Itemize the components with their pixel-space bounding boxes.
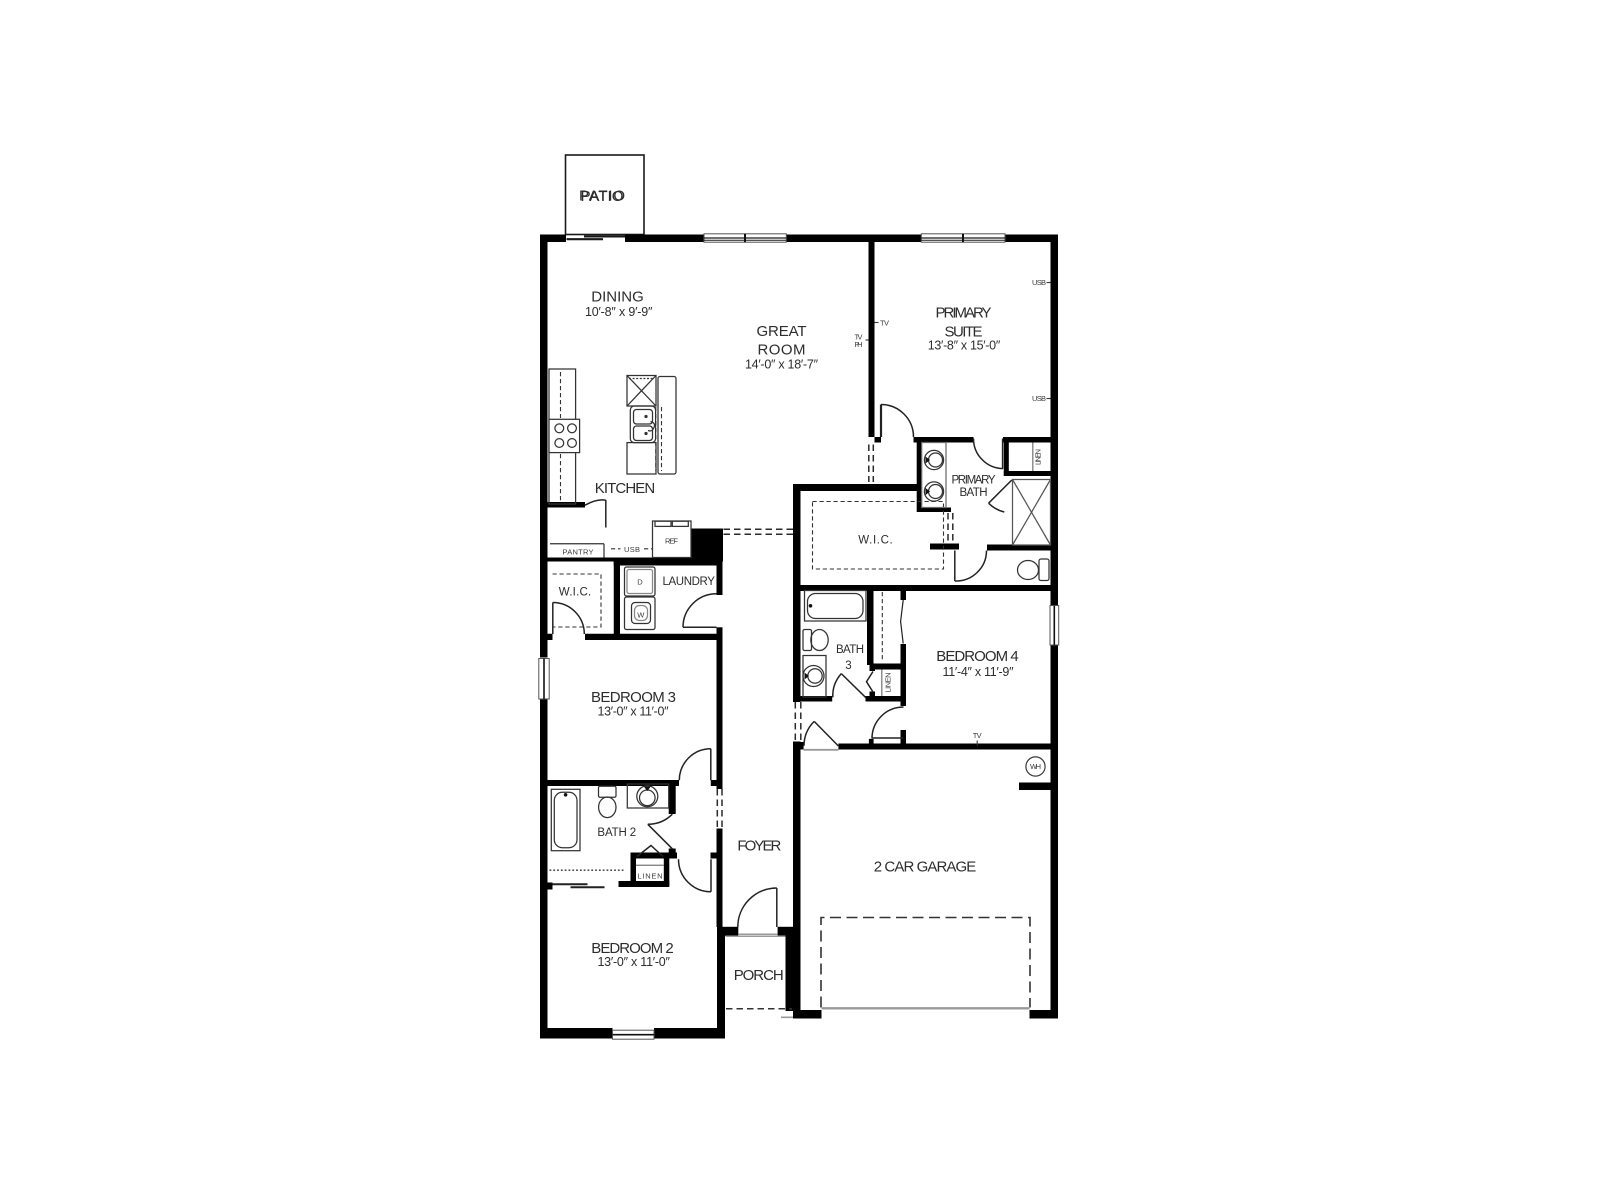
svg-text:13′-8″ x 15′-0″: 13′-8″ x 15′-0″ xyxy=(928,338,1001,352)
svg-text:WH: WH xyxy=(1030,762,1041,771)
svg-text:BATH 2: BATH 2 xyxy=(597,827,636,839)
svg-text:LAUNDRY: LAUNDRY xyxy=(662,576,715,588)
svg-text:13′-0″ x 11′-0″: 13′-0″ x 11′-0″ xyxy=(598,705,670,719)
svg-text:LINEN: LINEN xyxy=(1034,449,1043,465)
svg-text:PRIMARY: PRIMARY xyxy=(952,475,996,487)
svg-text:PRIMARY: PRIMARY xyxy=(936,304,992,321)
svg-text:13′-0″ x 11′-0″: 13′-0″ x 11′-0″ xyxy=(597,955,670,969)
svg-text:USB: USB xyxy=(1032,278,1046,287)
svg-text:W.I.C.: W.I.C. xyxy=(858,535,893,547)
svg-text:TV: TV xyxy=(973,731,982,740)
svg-text:GREAT: GREAT xyxy=(757,323,807,340)
svg-text:KITCHEN: KITCHEN xyxy=(595,480,656,497)
svg-text:PATIO: PATIO xyxy=(579,188,625,205)
svg-text:LINEN: LINEN xyxy=(638,872,663,881)
svg-text:2 CAR GARAGE: 2 CAR GARAGE xyxy=(874,859,977,876)
svg-text:W: W xyxy=(637,611,645,620)
svg-text:3: 3 xyxy=(845,660,851,672)
svg-text:REF: REF xyxy=(665,537,678,546)
svg-text:BEDROOM 3: BEDROOM 3 xyxy=(591,689,676,706)
svg-text:LINEN: LINEN xyxy=(884,673,893,693)
svg-text:TV: TV xyxy=(880,319,889,328)
svg-text:ROOM: ROOM xyxy=(758,342,806,359)
svg-text:FOYER: FOYER xyxy=(737,838,781,855)
svg-text:BEDROOM 4: BEDROOM 4 xyxy=(936,648,1019,665)
svg-text:D: D xyxy=(637,578,643,587)
svg-text:14′-0″ x 18′-7″: 14′-0″ x 18′-7″ xyxy=(745,358,819,372)
svg-text:USB: USB xyxy=(1032,394,1046,403)
svg-text:DINING: DINING xyxy=(591,289,644,306)
svg-text:PORCH: PORCH xyxy=(734,967,784,984)
svg-text:PANTRY: PANTRY xyxy=(563,548,594,557)
svg-text:PH: PH xyxy=(855,340,863,349)
svg-text:BATH: BATH xyxy=(960,487,988,499)
svg-text:USB: USB xyxy=(624,545,640,554)
svg-text:11′-4″ x 11′-9″: 11′-4″ x 11′-9″ xyxy=(943,665,1015,679)
svg-text:W.I.C.: W.I.C. xyxy=(559,587,592,599)
svg-text:BATH: BATH xyxy=(836,644,864,656)
svg-text:10′-8″ x 9′-9″: 10′-8″ x 9′-9″ xyxy=(585,305,653,319)
